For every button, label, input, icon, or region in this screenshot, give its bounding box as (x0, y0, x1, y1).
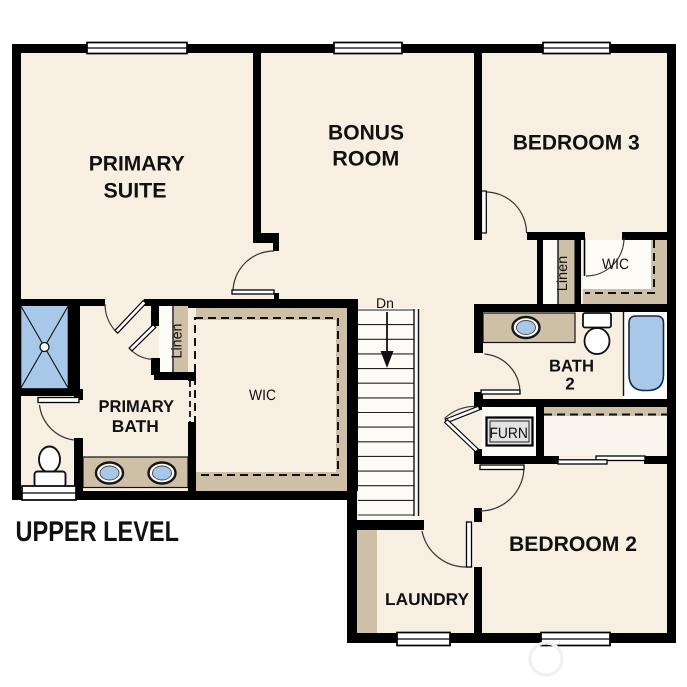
svg-text:WIC: WIC (249, 387, 276, 404)
svg-text:PRIMARY: PRIMARY (89, 152, 185, 175)
svg-text:Linen: Linen (170, 324, 186, 359)
svg-text:Linen: Linen (555, 256, 571, 292)
svg-text:UPPER LEVEL: UPPER LEVEL (16, 516, 180, 548)
svg-text:ROOM: ROOM (332, 148, 399, 171)
svg-text:BATH: BATH (549, 357, 594, 376)
svg-text:2: 2 (565, 375, 574, 394)
svg-text:PRIMARY: PRIMARY (99, 397, 175, 416)
svg-text:BATH: BATH (112, 417, 159, 436)
svg-text:BEDROOM 2: BEDROOM 2 (509, 533, 637, 556)
svg-text:Dn: Dn (376, 295, 394, 311)
svg-text:LAUNDRY: LAUNDRY (385, 590, 470, 609)
svg-text:BONUS: BONUS (328, 121, 404, 144)
svg-text:WIC: WIC (602, 256, 629, 273)
svg-text:SUITE: SUITE (104, 179, 167, 202)
svg-text:FURN: FURN (489, 425, 528, 442)
svg-text:BEDROOM 3: BEDROOM 3 (513, 132, 640, 155)
